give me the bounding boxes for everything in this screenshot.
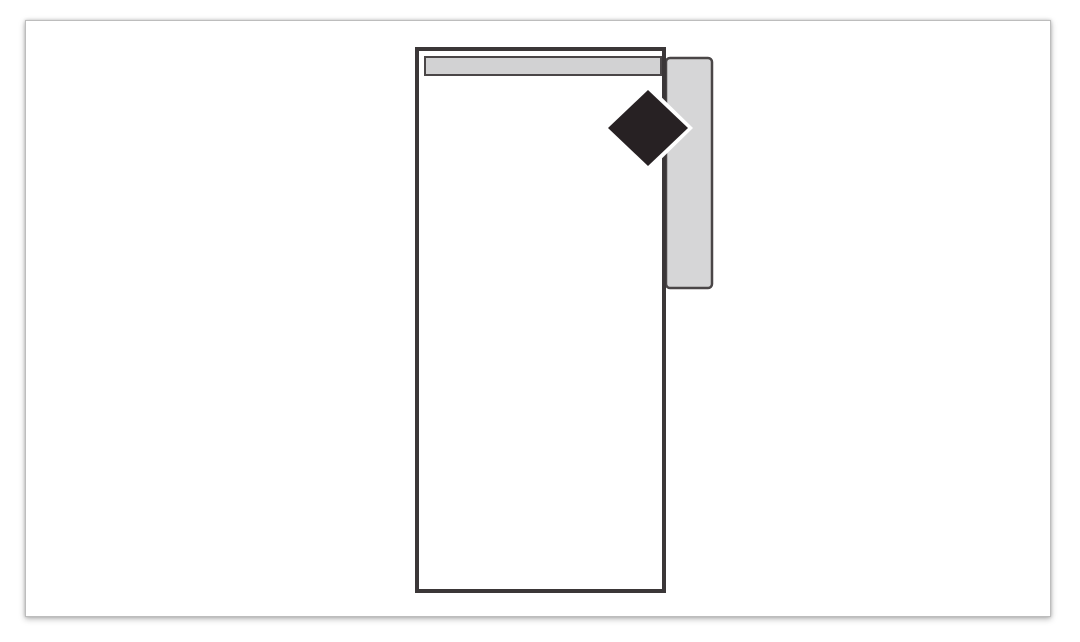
furniture-symbol-diagram (0, 0, 1080, 642)
image-canvas (0, 0, 1080, 642)
backrest-bar-shape (425, 57, 661, 75)
right-arm-shape (666, 58, 712, 288)
